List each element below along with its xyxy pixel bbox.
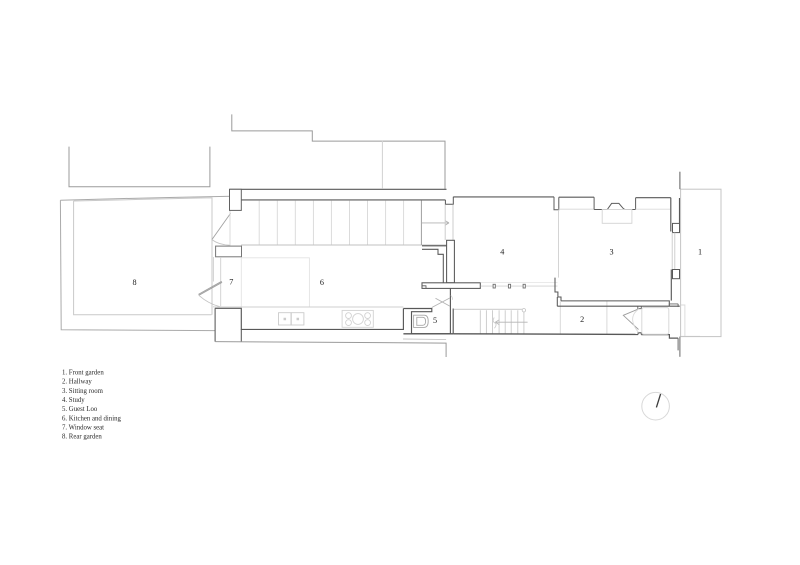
svg-text:4. Study: 4. Study (62, 397, 85, 404)
svg-text:6. Kitchen and dining: 6. Kitchen and dining (62, 415, 121, 422)
svg-text:5: 5 (433, 316, 437, 325)
svg-text:8: 8 (132, 278, 136, 287)
svg-text:3. Sitting room: 3. Sitting room (62, 388, 104, 395)
svg-text:8. Rear garden: 8. Rear garden (62, 434, 102, 441)
svg-text:5. Guest Loo: 5. Guest Loo (62, 406, 98, 413)
svg-text:7. Window seat: 7. Window seat (62, 424, 104, 431)
svg-text:1. Front garden: 1. Front garden (62, 370, 104, 377)
svg-text:4: 4 (500, 247, 504, 256)
svg-text:2: 2 (580, 315, 584, 324)
svg-text:6: 6 (320, 278, 324, 287)
svg-text:1: 1 (698, 247, 702, 256)
svg-text:7: 7 (229, 277, 233, 286)
svg-text:2. Hallway: 2. Hallway (62, 379, 92, 386)
svg-text:3: 3 (610, 247, 614, 256)
